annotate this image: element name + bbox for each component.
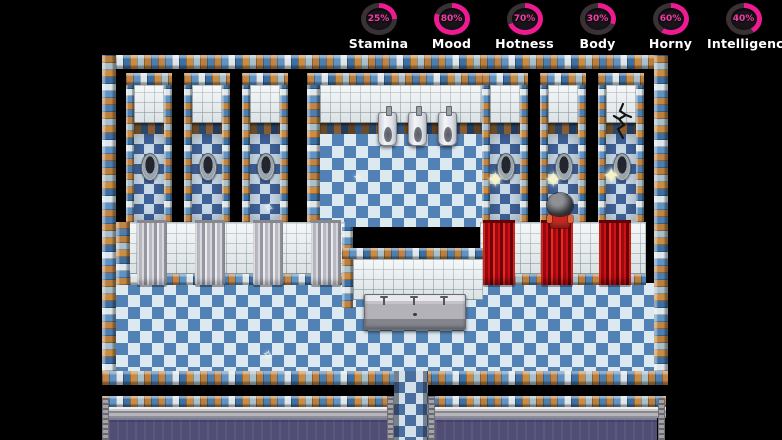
urinal-2[interactable] bbox=[408, 112, 427, 146]
faucet-icon bbox=[439, 296, 449, 306]
stall-ledge bbox=[490, 123, 520, 134]
stat-stamina: 25% Stamina bbox=[342, 1, 415, 51]
stat-mood: 80% Mood bbox=[415, 1, 488, 51]
sparkle-icon: ✦ bbox=[544, 170, 562, 192]
stall-wall-right bbox=[164, 85, 172, 222]
stall-wall-left bbox=[184, 85, 192, 222]
shower-curtain-silver-2[interactable] bbox=[195, 220, 225, 285]
room-wall-right bbox=[654, 55, 668, 385]
corridor-wall-left bbox=[387, 396, 394, 440]
body-gauge-ring: 30% bbox=[580, 3, 616, 35]
sink-wall-top bbox=[342, 248, 483, 259]
stall-tile-wall bbox=[548, 85, 578, 123]
stall-tile-wall bbox=[134, 85, 164, 123]
stall-ledge bbox=[192, 123, 222, 134]
stamina-label: Stamina bbox=[342, 36, 415, 51]
lower-room-edge-right bbox=[658, 398, 665, 440]
mid-floor bbox=[320, 134, 482, 227]
stall-wall-left bbox=[482, 85, 490, 222]
shower-stall-left-2[interactable] bbox=[184, 73, 230, 222]
stat-intelligence: 40% Intelligence bbox=[707, 1, 780, 51]
shower-stall-right-3[interactable] bbox=[598, 73, 644, 222]
stats-bar: 25% Stamina 80% Mood 70% Hotness 30% Bod… bbox=[342, 1, 780, 51]
hotness-gauge-ring: 70% bbox=[507, 3, 543, 35]
crack-decal bbox=[611, 103, 633, 139]
urinal-1[interactable] bbox=[378, 112, 397, 146]
shower-curtain-silver-1[interactable] bbox=[137, 220, 167, 285]
game-viewport: ✦ ✦ ✦ ✧ ✧ ✧ 25% Stamina 80% Mood 70% Ho bbox=[0, 0, 782, 440]
hotness-percent: 70% bbox=[507, 3, 543, 35]
shower-curtain-red-3[interactable] bbox=[599, 220, 631, 285]
shower-drain bbox=[141, 153, 159, 181]
shower-stall-left-1[interactable] bbox=[126, 73, 172, 222]
lower-room-wall bbox=[102, 396, 666, 407]
stat-body: 30% Body bbox=[561, 1, 634, 51]
lower-room-metal-band bbox=[102, 407, 666, 418]
sparkle-icon: ✦ bbox=[602, 166, 620, 188]
stall-wall-left bbox=[598, 85, 606, 222]
stat-horny: 60% Horny bbox=[634, 1, 707, 51]
stall-ledge bbox=[134, 123, 164, 134]
stamina-gauge-ring: 25% bbox=[361, 3, 397, 35]
horny-label: Horny bbox=[634, 36, 707, 51]
mood-label: Mood bbox=[415, 36, 488, 51]
room-wall-top bbox=[102, 55, 668, 69]
stall-tile-wall bbox=[490, 85, 520, 123]
shower-curtain-red-1[interactable] bbox=[483, 220, 515, 285]
player-character[interactable] bbox=[546, 193, 574, 231]
mid-ledge bbox=[320, 123, 482, 134]
stall-wall-top bbox=[540, 73, 586, 85]
intelligence-label: Intelligence bbox=[707, 36, 780, 51]
hotness-label: Hotness bbox=[488, 36, 561, 51]
faucet-icon bbox=[409, 296, 419, 306]
mid-tile-wall bbox=[320, 85, 482, 123]
corridor-wall-right bbox=[428, 396, 435, 440]
stall-wall-top bbox=[126, 73, 172, 85]
shower-drain bbox=[257, 153, 275, 181]
intelligence-gauge-ring: 40% bbox=[726, 3, 762, 35]
stall-wall-top bbox=[242, 73, 288, 85]
faucet-icon bbox=[379, 296, 389, 306]
stall-wall-top bbox=[598, 73, 644, 85]
lower-room-floor-right bbox=[435, 418, 657, 440]
stamina-percent: 25% bbox=[361, 3, 397, 35]
body-percent: 30% bbox=[580, 3, 616, 35]
sink-trough[interactable] bbox=[364, 294, 466, 330]
lower-room-edge-left bbox=[102, 398, 109, 440]
shower-curtain-silver-3[interactable] bbox=[253, 220, 283, 285]
stall-ledge bbox=[250, 123, 280, 134]
character-hair bbox=[547, 193, 573, 216]
horny-gauge-ring: 60% bbox=[653, 3, 689, 35]
urinal-3[interactable] bbox=[438, 112, 457, 146]
character-arm-right bbox=[568, 215, 573, 223]
sink-wall-left bbox=[342, 227, 353, 308]
stat-hotness: 70% Hotness bbox=[488, 1, 561, 51]
mid-wall-left bbox=[307, 85, 320, 222]
horny-percent: 60% bbox=[653, 3, 689, 35]
shower-stall-right-1[interactable] bbox=[482, 73, 528, 222]
stall-wall-right bbox=[636, 85, 644, 222]
room-wall-left bbox=[102, 55, 116, 385]
stall-ledge bbox=[548, 123, 578, 134]
stall-wall-right bbox=[280, 85, 288, 222]
stall-wall-right bbox=[222, 85, 230, 222]
intelligence-percent: 40% bbox=[726, 3, 762, 35]
mid-wall-top bbox=[307, 73, 482, 85]
stall-wall-left bbox=[242, 85, 250, 222]
stall-wall-right bbox=[578, 85, 586, 222]
lower-room-floor-left bbox=[108, 418, 387, 440]
stall-wall-left bbox=[126, 85, 134, 222]
stall-wall-top bbox=[184, 73, 230, 85]
shower-curtain-silver-4[interactable] bbox=[311, 220, 341, 285]
mood-gauge-ring: 80% bbox=[434, 3, 470, 35]
character-arm-left bbox=[547, 215, 552, 223]
stall-tile-wall bbox=[192, 85, 222, 123]
stall-wall-top bbox=[482, 73, 528, 85]
body-label: Body bbox=[561, 36, 634, 51]
sparkle-icon: ✦ bbox=[486, 170, 504, 192]
exit-corridor[interactable] bbox=[394, 371, 428, 440]
room-wall-bottom bbox=[102, 371, 668, 385]
shower-drain bbox=[199, 153, 217, 181]
stall-wall-right bbox=[520, 85, 528, 222]
shower-front-pillar bbox=[116, 222, 130, 285]
mood-percent: 80% bbox=[434, 3, 470, 35]
stall-tile-wall bbox=[250, 85, 280, 123]
